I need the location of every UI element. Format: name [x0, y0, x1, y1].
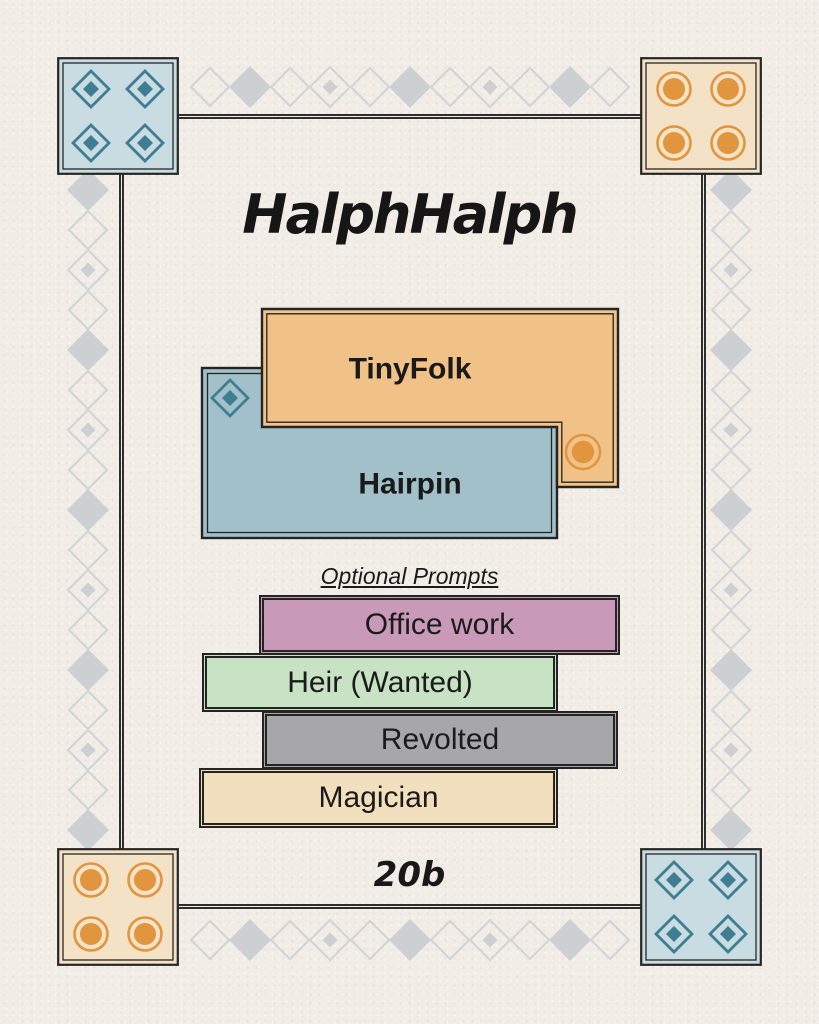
prompt-bar[interactable]: Heir (Wanted) [202, 653, 558, 712]
card-sheet: HalphHalph TinyFolk Hairpin Optional Pro… [0, 0, 819, 1024]
diamond-chain-bottom [191, 919, 629, 961]
prompt-label: Revolted [381, 723, 499, 757]
corner-square-top-right [640, 57, 762, 175]
diamond-chain-left [67, 169, 109, 851]
prompt-label: Office work [365, 608, 515, 642]
footer-code: 20b [0, 855, 819, 895]
diamond-chain-top [191, 66, 629, 108]
prompt-bar[interactable]: Office work [259, 595, 620, 655]
card-hairpin-label: Hairpin [358, 468, 461, 501]
name-cards: TinyFolk Hairpin [195, 300, 625, 548]
diamond-chain-right [710, 169, 752, 851]
prompt-bar[interactable]: Magician [199, 768, 558, 828]
card-tinyfolk-label: TinyFolk [349, 353, 472, 386]
prompt-bar[interactable]: Revolted [262, 711, 618, 769]
prompt-label: Magician [318, 781, 438, 815]
prompts-heading: Optional Prompts [0, 563, 819, 590]
page-title: HalphHalph [0, 183, 819, 246]
corner-square-top-left [57, 57, 179, 175]
prompt-label: Heir (Wanted) [287, 666, 473, 700]
